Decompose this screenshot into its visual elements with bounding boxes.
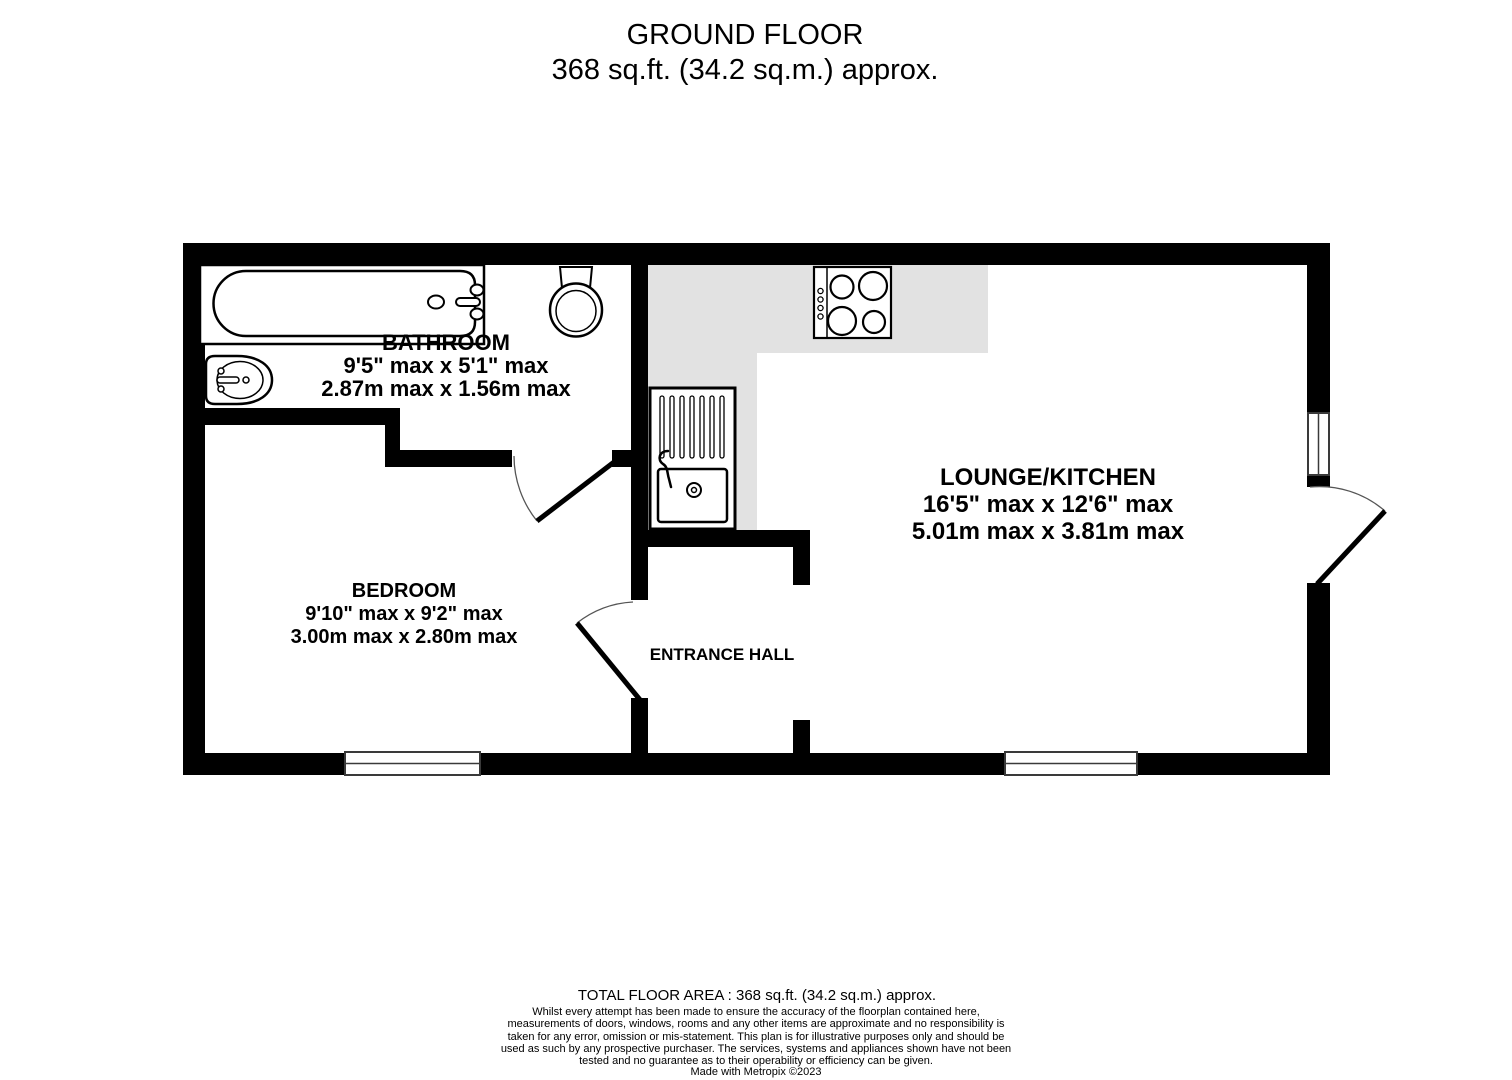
room-name: LOUNGE/KITCHEN [912,464,1184,491]
room-dims-imperial: 9'5" max x 5'1" max [321,354,571,377]
room-name: ENTRANCE HALL [650,646,795,664]
room-dims-metric: 3.00m max x 2.80m max [291,626,518,649]
entrance-hall-label: ENTRANCE HALL [650,646,795,664]
kitchen-sink-icon [650,388,735,529]
room-name: BATHROOM [321,331,571,354]
room-name: BEDROOM [291,580,518,603]
side-window [1308,413,1329,475]
entrance-door [1310,487,1385,584]
metropix-credit: Made with Metropix ©2023 [690,1066,821,1078]
bedroom-label: BEDROOM 9'10" max x 9'2" max 3.00m max x… [291,580,518,649]
bedroom-window [345,752,480,775]
basin-icon [206,356,272,404]
lounge-kitchen-label: LOUNGE/KITCHEN 16'5" max x 12'6" max 5.0… [912,464,1184,545]
plan-subtitle: 368 sq.ft. (34.2 sq.m.) approx. [552,53,939,88]
room-dims-metric: 2.87m max x 1.56m max [321,377,571,400]
hob-icon [814,267,891,338]
plan-header: GROUND FLOOR 368 sq.ft. (34.2 sq.m.) app… [552,18,939,88]
lounge-window [1005,752,1137,775]
bathroom-door [514,456,618,521]
room-dims-imperial: 9'10" max x 9'2" max [291,603,518,626]
bathroom-label: BATHROOM 9'5" max x 5'1" max 2.87m max x… [321,331,571,400]
room-dims-imperial: 16'5" max x 12'6" max [912,491,1184,518]
total-floor-area: TOTAL FLOOR AREA : 368 sq.ft. (34.2 sq.m… [578,987,936,1004]
floorplan-drawing [0,0,1512,1080]
disclaimer-text: Whilst every attempt has been made to en… [498,1006,1014,1067]
plan-title: GROUND FLOOR [552,18,939,53]
toilet-icon [550,267,602,337]
floorplan-page: { "header": { "title": "GROUND FLOOR", "… [0,0,1512,1080]
bedroom-door [577,602,641,701]
room-dims-metric: 5.01m max x 3.81m max [912,518,1184,545]
